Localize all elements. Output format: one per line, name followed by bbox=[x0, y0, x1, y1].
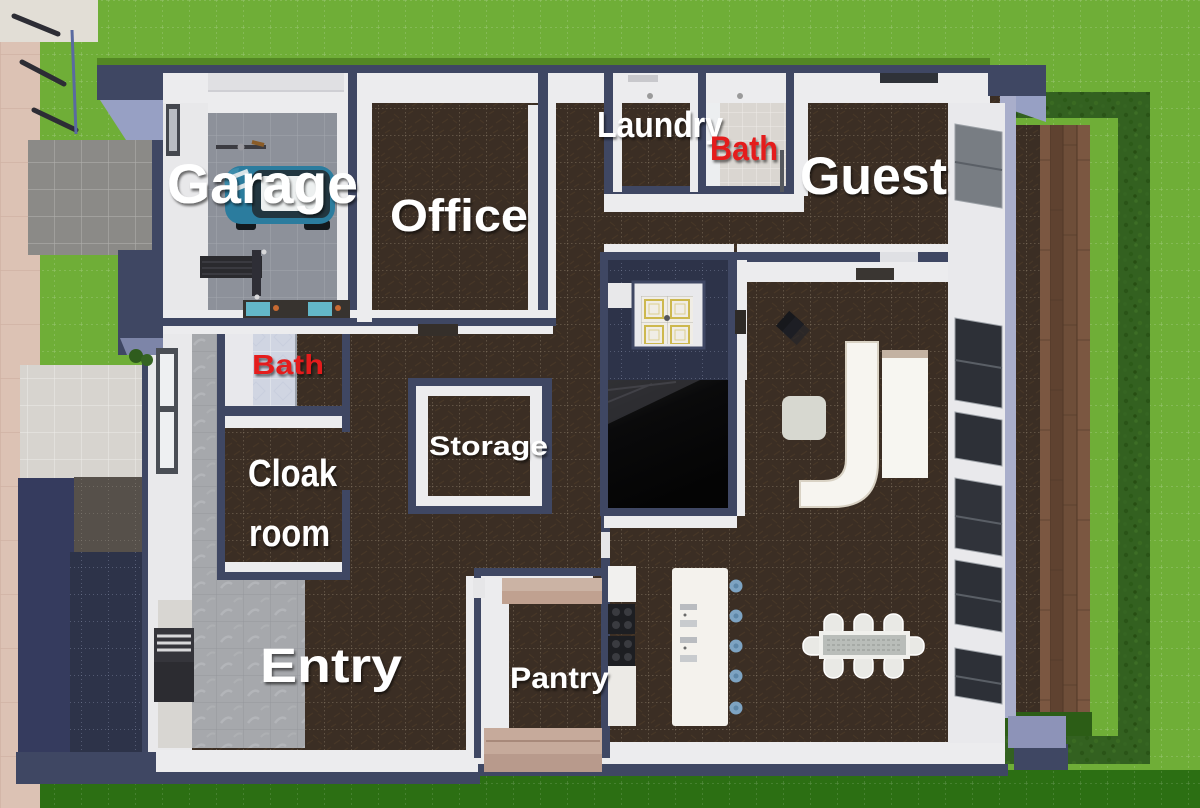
svg-text:room: room bbox=[249, 513, 330, 555]
svg-text:Guest: Guest bbox=[800, 147, 947, 206]
svg-text:Garage: Garage bbox=[167, 152, 358, 215]
svg-text:Entry: Entry bbox=[260, 640, 402, 693]
svg-text:Bath: Bath bbox=[252, 349, 324, 380]
svg-text:Storage: Storage bbox=[429, 431, 548, 461]
svg-text:Pantry: Pantry bbox=[510, 662, 609, 695]
svg-text:Office: Office bbox=[390, 190, 528, 241]
svg-text:Laundry: Laundry bbox=[597, 104, 723, 145]
svg-text:Cloak: Cloak bbox=[248, 453, 338, 495]
svg-text:Bath: Bath bbox=[710, 130, 778, 168]
